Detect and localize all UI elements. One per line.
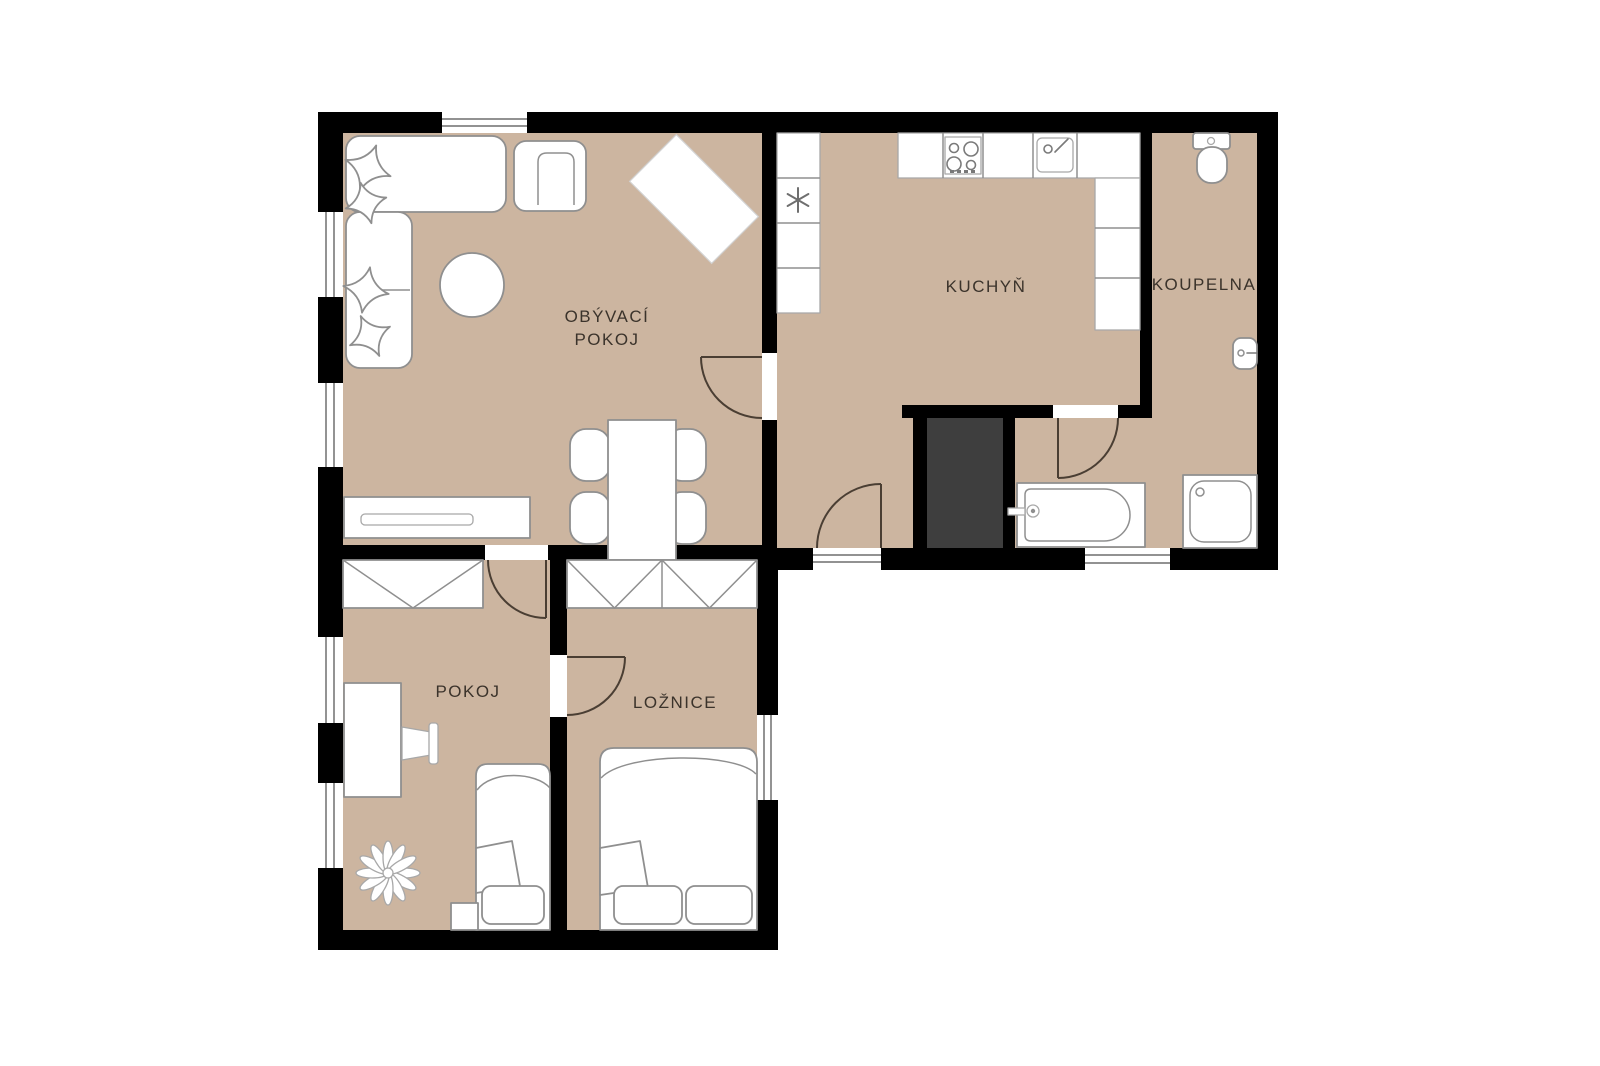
washbasin (1233, 338, 1257, 369)
window-living-left-1 (318, 212, 343, 297)
wall-right (1257, 112, 1278, 570)
coffee-table (440, 253, 504, 317)
stove (945, 137, 981, 174)
pillow (482, 886, 544, 924)
wall-pokoj-loznice-lower (550, 717, 567, 930)
double-bed (600, 748, 757, 930)
wall-bathroom-door-jamb (1118, 405, 1152, 418)
wall-shaft-left (913, 418, 927, 548)
pillow (614, 886, 682, 924)
utility-shaft (927, 418, 1003, 548)
sideboard (344, 497, 530, 538)
pillow (686, 886, 752, 924)
window-bathroom-bottom (1085, 548, 1170, 570)
bathtub-tap (1008, 508, 1025, 515)
label-kitchen: KUCHYŇ (946, 277, 1027, 296)
window-pokoj-left-1 (318, 637, 343, 723)
window-loznice-right (757, 715, 778, 800)
label-bathroom: KOUPELNA (1152, 275, 1257, 294)
label-living-room-line1: OBÝVACÍ (565, 307, 650, 326)
wall-kitchen-bathroom (1140, 133, 1152, 418)
counter-left-column (777, 133, 820, 313)
window-pokoj-left-2 (318, 783, 343, 868)
wall-living-kitchen-lower (762, 420, 777, 548)
floorplan-drawing: OBÝVACÍ POKOJ KUCHYŇ KOUPELNA POKOJ LOŽN… (0, 0, 1600, 1066)
wall-living-bedrooms-left (318, 545, 485, 560)
dining-chair (570, 429, 610, 481)
window-living-left-2 (318, 383, 343, 467)
counter-top-row (898, 133, 1140, 178)
dining-chair (570, 492, 610, 544)
wall-bottom-lower-section (318, 930, 778, 950)
shower (1183, 475, 1257, 548)
desk (344, 683, 401, 797)
dining-table (608, 420, 676, 560)
wall-living-kitchen-upper (762, 133, 777, 353)
nightstand (451, 903, 478, 930)
single-bed (476, 764, 550, 930)
bathtub (1008, 483, 1145, 547)
wall-pokoj-loznice-upper (550, 557, 567, 655)
label-living-room-line2: POKOJ (574, 330, 639, 349)
toilet (1193, 133, 1230, 183)
floorplan-canvas: OBÝVACÍ POKOJ KUCHYŇ KOUPELNA POKOJ LOŽN… (0, 0, 1600, 1066)
label-bedroom: LOŽNICE (633, 693, 717, 712)
counter-right-column (1095, 178, 1140, 330)
label-room: POKOJ (435, 682, 500, 701)
wardrobe-pokoj (343, 560, 483, 608)
wall-above-shaft (902, 405, 1053, 418)
kitchen-sink (1037, 138, 1073, 172)
window-living-top (442, 112, 527, 133)
wall-shaft-right (1003, 418, 1015, 548)
armchair (514, 141, 586, 211)
wardrobe-loznice (567, 560, 757, 608)
